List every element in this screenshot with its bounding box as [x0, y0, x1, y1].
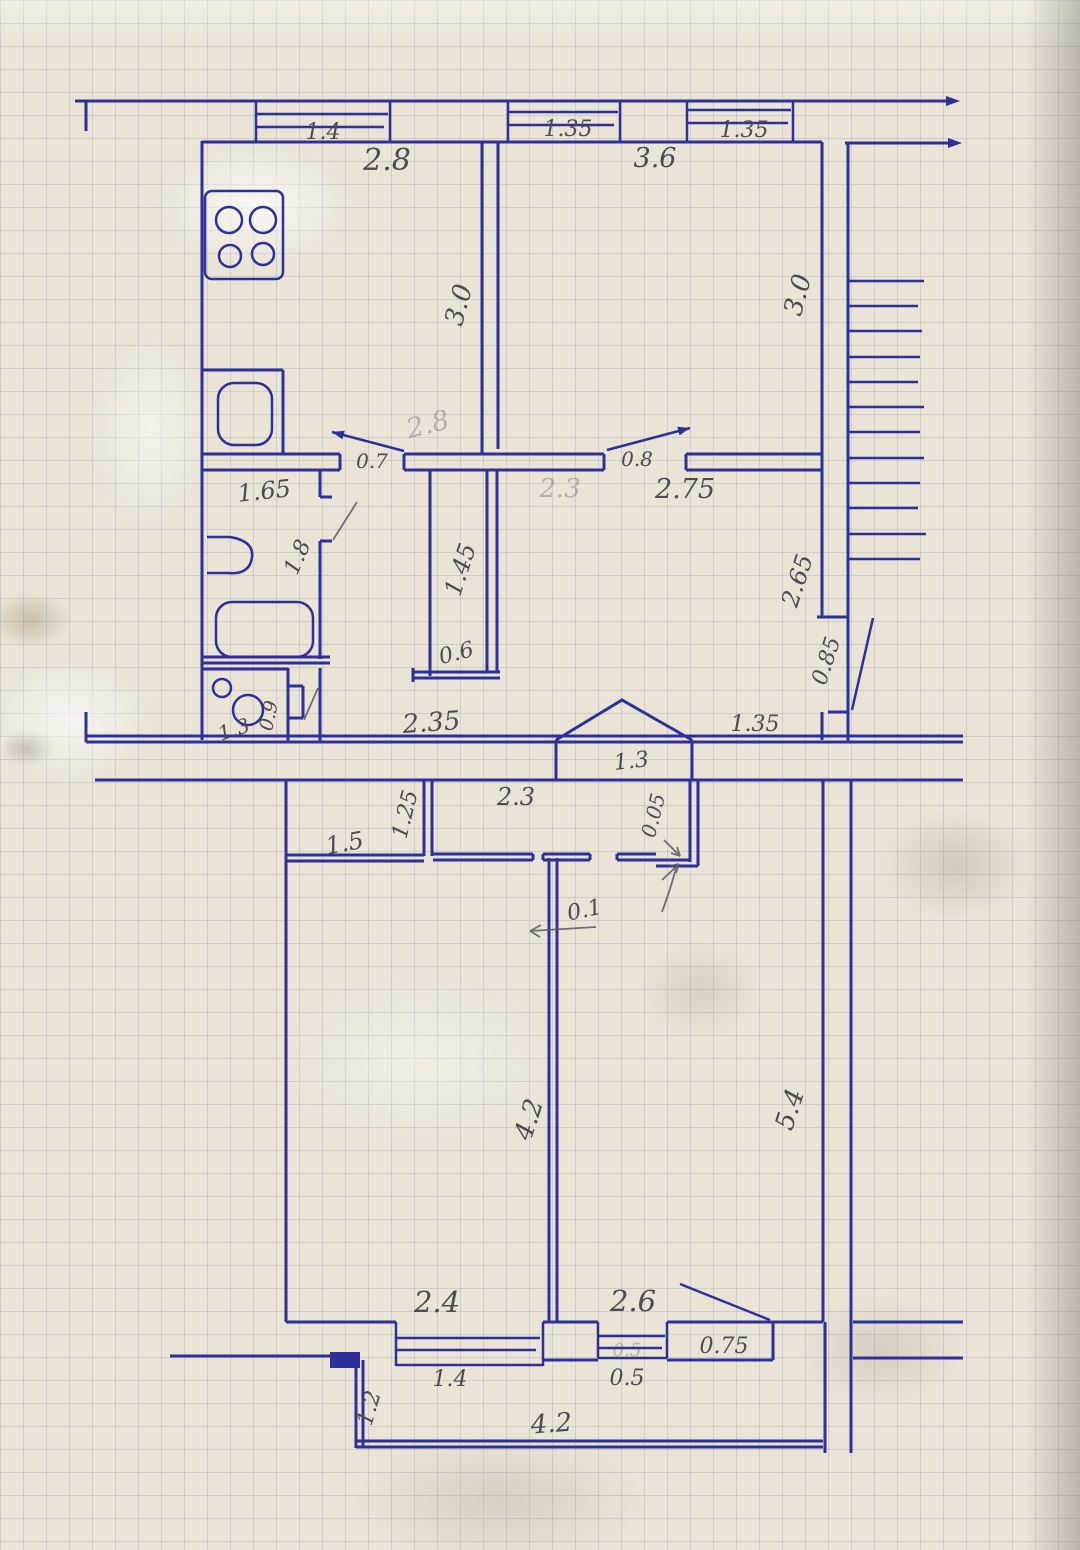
dim-closet-height: 1.45: [439, 540, 482, 599]
wall-block: [330, 1352, 360, 1368]
dim-mid-window: 1.35: [731, 712, 780, 737]
dim-porch-width: 1.3: [613, 747, 650, 776]
windows: [256, 101, 793, 1366]
dim-top-window-2: 1.35: [544, 117, 593, 142]
dim-room-right-height: 5.4: [770, 1085, 811, 1134]
right-door-swing: [852, 618, 873, 710]
bath-door-swing: [333, 502, 357, 540]
dim-entry-right: 2.3: [496, 783, 535, 811]
dim-kitchen-width: 2.8: [362, 143, 411, 178]
balcony-door-swing: [680, 1284, 770, 1320]
burner-icon: [219, 245, 241, 267]
dim-top-window-3: 1.35: [720, 118, 769, 143]
bathtub-icon: [216, 602, 313, 657]
dim-room-right-width: 2.6: [609, 1284, 656, 1318]
dim-balcony-door: 0.75: [700, 1334, 749, 1359]
floor-plan-drawing: 1.4 2.8 1.35 3.6 1.35 3.0 3.0 2.8 0.7 0.…: [0, 0, 1080, 1550]
dim-entry-divider: 1.25: [388, 788, 424, 842]
fixtures: [205, 191, 313, 725]
kitchen-sink-icon: [218, 383, 272, 445]
dim-top-window-1: 1.4: [306, 120, 341, 145]
dim-kitchen-door: 0.7: [356, 449, 388, 473]
dim-hall-width: 2.75: [654, 474, 715, 505]
dim-balcony-depth: 1.2: [353, 1388, 387, 1429]
graph-paper-page: 1.4 2.8 1.35 3.6 1.35 3.0 3.0 2.8 0.7 0.…: [0, 0, 1080, 1550]
dim-wall-thickness: 0.1: [565, 895, 604, 927]
dim-wc-depth: 0.9: [255, 699, 283, 733]
dim-balcony-width: 4.2: [529, 1408, 573, 1441]
staircase-steps: [848, 281, 926, 559]
dim-room2-height: 3.0: [778, 271, 818, 319]
burner-icon: [250, 207, 276, 233]
pencil-marks: [304, 502, 680, 937]
dim-room2-width: 3.6: [634, 143, 677, 174]
dim-bottom-window-2-ghost: 0.5: [613, 1340, 642, 1361]
dim-arrow-0-1: [530, 925, 596, 937]
wc-door-swing: [304, 688, 318, 720]
dim-bottom-window-2: 0.5: [610, 1366, 645, 1391]
dim-arrow-0-05: [662, 840, 680, 912]
dim-kitchen-ghost: 2.8: [402, 405, 452, 446]
window-bottom-1: [396, 1322, 543, 1366]
dim-wall-gap: 0.05: [636, 791, 670, 840]
burner-icon: [252, 243, 274, 265]
stove-icon: [205, 191, 283, 279]
dim-bath-width: 1.65: [236, 474, 292, 507]
dim-kitchen-height: 3.0: [439, 281, 479, 329]
dim-room-left-height: 4.2: [508, 1095, 550, 1145]
dim-lower-wall-left: 2.35: [401, 706, 462, 740]
dim-bath-height: 1.8: [280, 536, 317, 578]
dim-room2-door: 0.8: [621, 447, 653, 471]
dim-closet-width: 0.6: [436, 637, 476, 670]
dim-room-left-width: 2.4: [413, 1285, 460, 1319]
dim-bottom-window-1: 1.4: [433, 1367, 468, 1392]
burner-icon: [216, 207, 242, 233]
toilet-icon: [207, 537, 252, 573]
wc-sink-icon: [213, 679, 231, 697]
dim-hall-ghost: 2.3: [538, 474, 580, 504]
dim-right-door: 0.85: [807, 634, 846, 688]
dim-hall-right-height: 2.65: [776, 551, 819, 611]
